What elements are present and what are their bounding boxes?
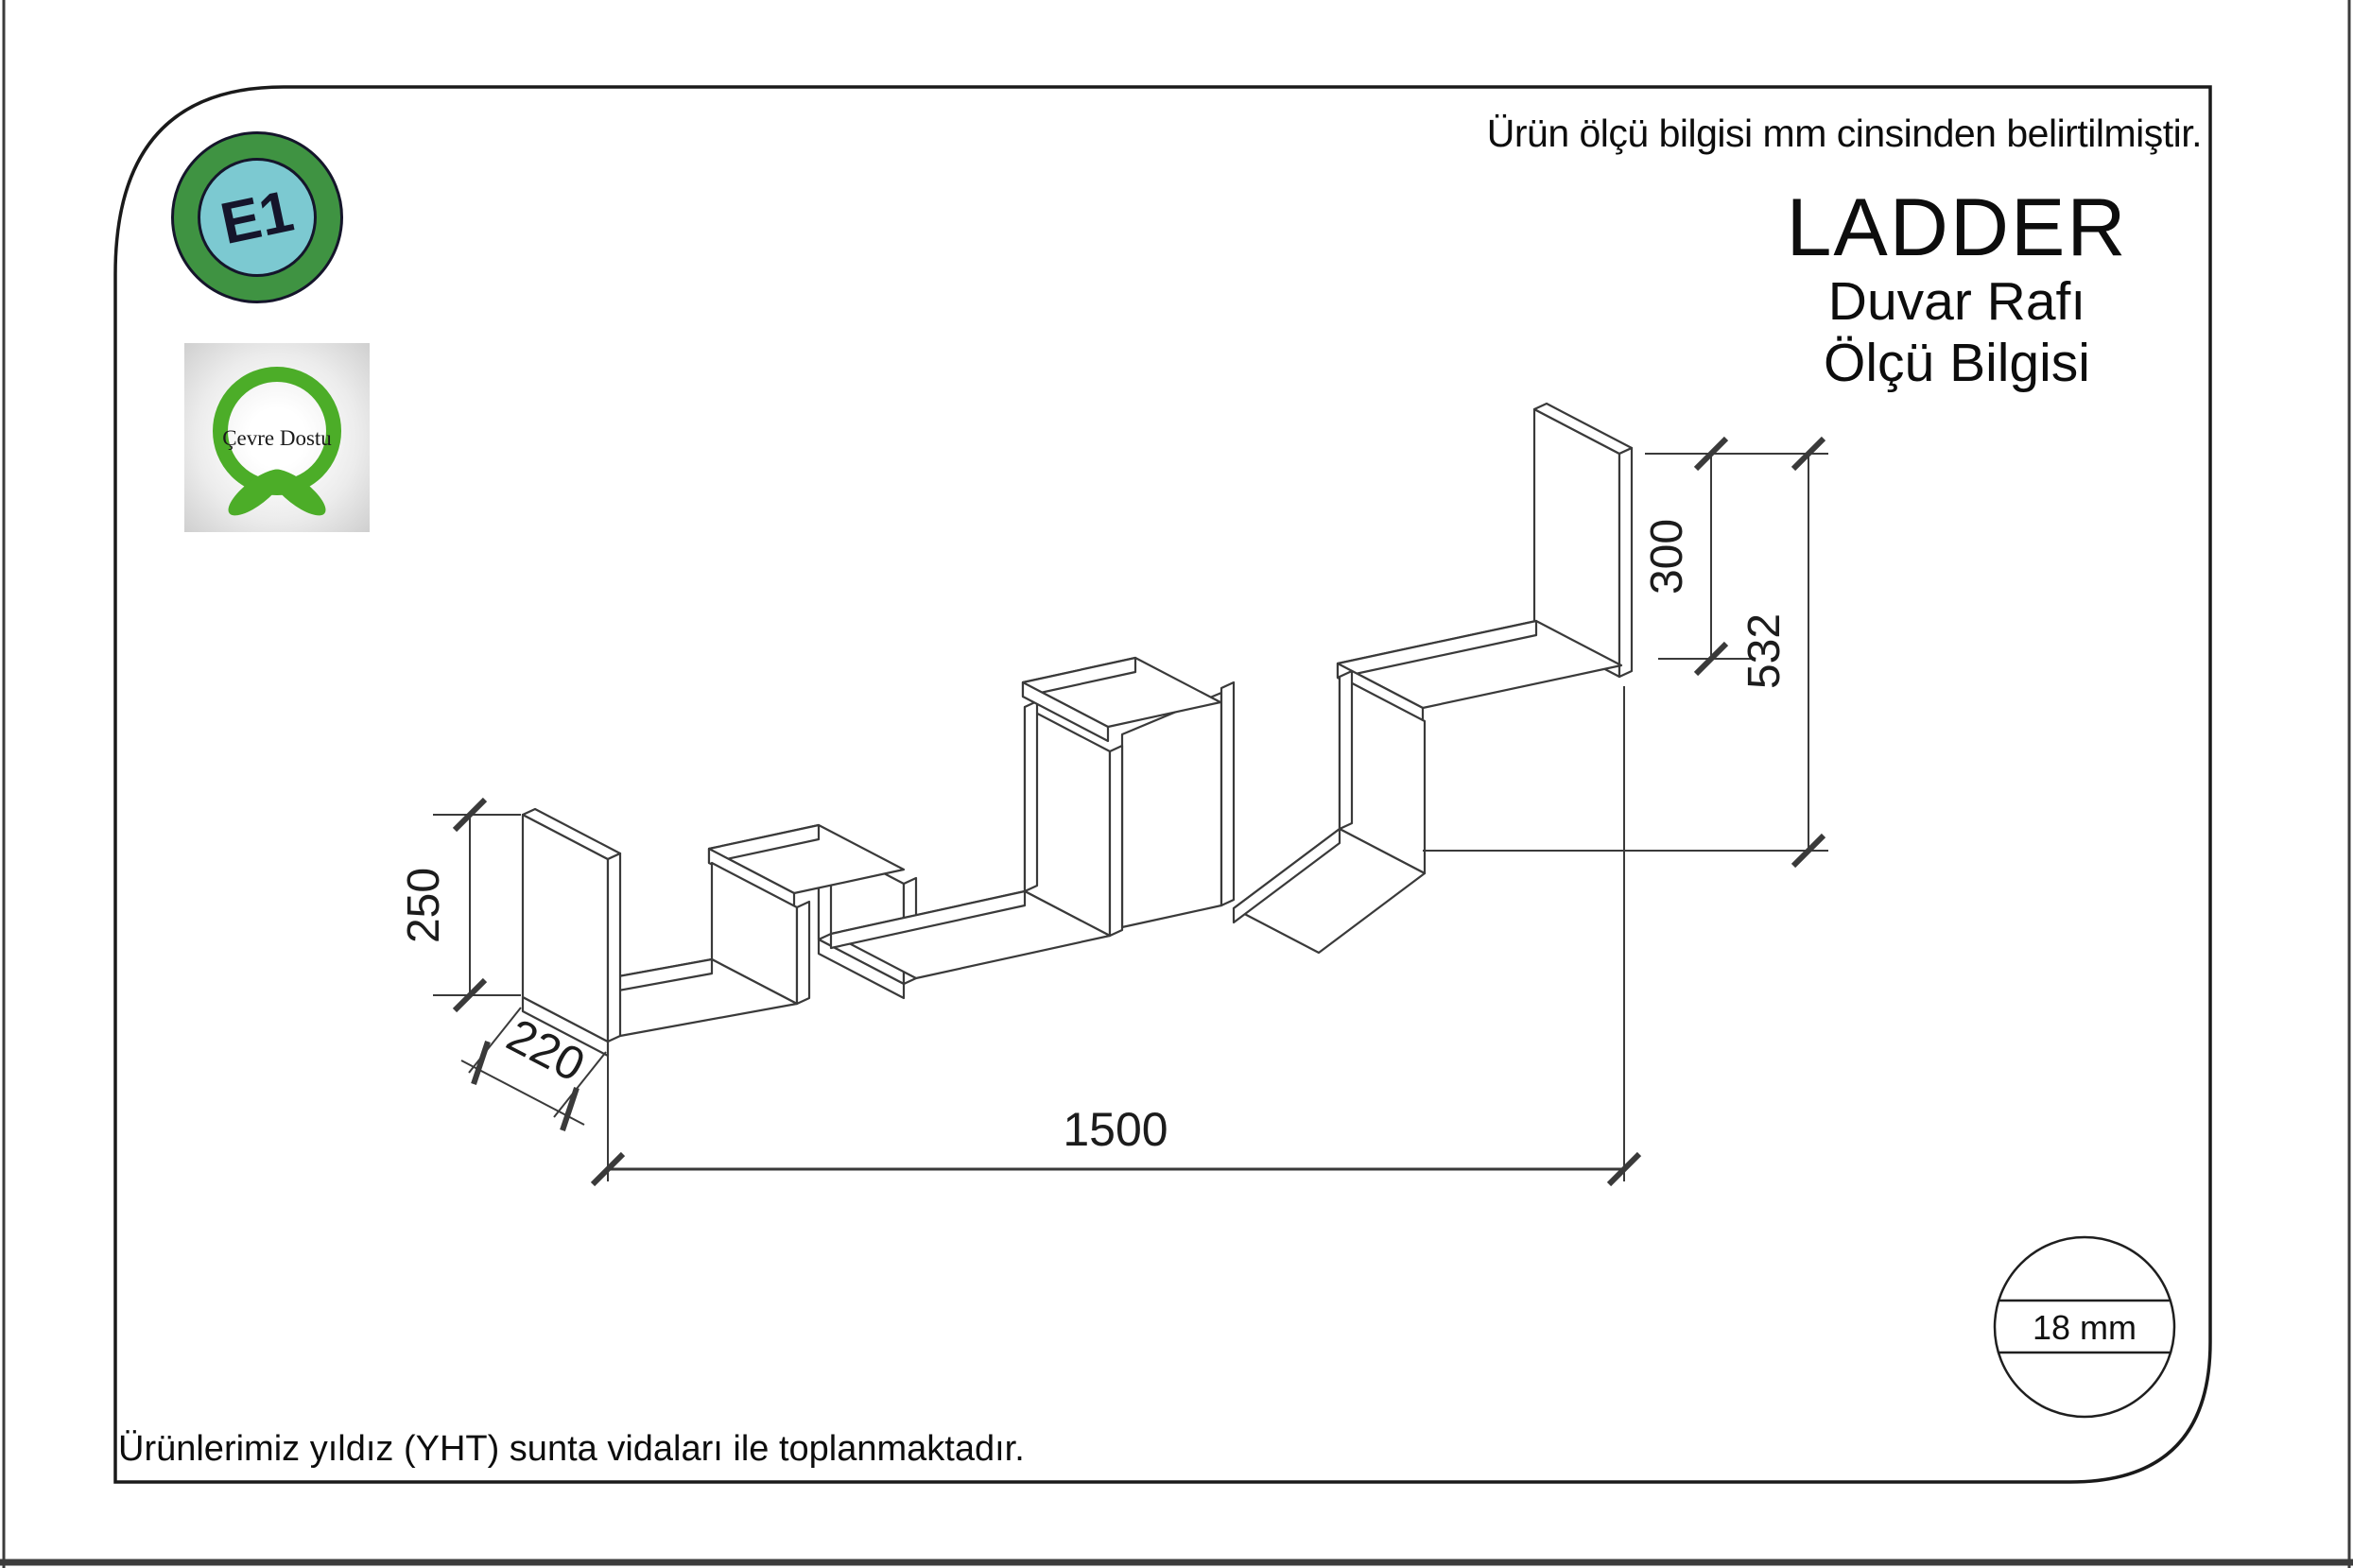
vertical-v1-back-edge [797,902,809,1004]
dim-label-250: 250 [399,868,449,943]
product-type: Duvar Rafı [1709,271,2205,334]
sheet-type: Ölçü Bilgisi [1709,334,2205,394]
thickness-label: 18 mm [2033,1308,2137,1347]
dim-label-532: 532 [1739,613,1790,689]
right-panel-back-edge [1619,448,1632,677]
dimension-sheet: 250 220 300 532 1500 18 mm Ürün ölçü bil… [0,0,2353,1568]
eco-friendly-logo: Çevre Dostu [184,343,370,532]
arch-b-interior [1122,693,1221,927]
assembly-note: Ürünlerimiz yıldız (YHT) sunta vidaları … [118,1429,1025,1470]
left-panel-back-edge [608,853,620,1042]
e1-badge-label: E1 [216,177,300,257]
vertical-v3-front-edge [1025,701,1037,891]
board-thickness-symbol: 18 mm [1995,1237,2174,1417]
measurement-unit-note: Ürün ölçü bilgisi mm cinsinden belirtilm… [1487,112,2202,156]
vertical-v3-back-edge [1110,746,1122,936]
dim-label-1500: 1500 [1063,1103,1168,1156]
e1-badge-inner-circle: E1 [198,158,317,277]
title-block: LADDER Duvar Rafı Ölçü Bilgisi [1709,185,2205,394]
shelf-isometric-drawing [523,404,1632,1056]
vertical-v4-front-edge [1221,682,1234,905]
eco-logo-label: Çevre Dostu [184,426,370,451]
product-name: LADDER [1709,185,2205,271]
dim-label-300: 300 [1642,519,1692,594]
e1-emission-badge: E1 [171,131,343,303]
vertical-v5-front-edge [1340,671,1352,829]
